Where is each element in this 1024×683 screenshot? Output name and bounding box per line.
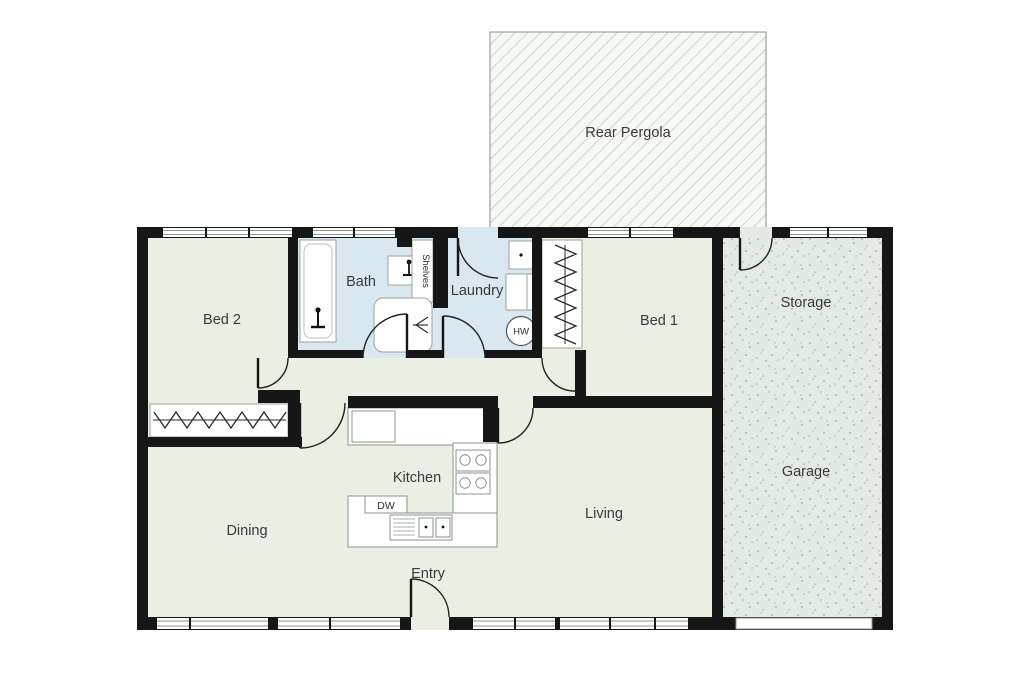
bath-window — [313, 228, 395, 237]
shelves-cupboard: Shelves — [412, 240, 433, 302]
bed2-window — [163, 228, 292, 237]
bath-basin — [388, 256, 415, 285]
hot-water-label: HW — [513, 327, 529, 338]
garage-door — [736, 618, 872, 629]
shower — [374, 298, 432, 352]
laundry-external-door-opening — [458, 227, 498, 238]
kitchen-bench-top — [348, 408, 497, 445]
floor-plan-canvas: Rear Pergola Shelves — [0, 0, 1024, 683]
bed2-wardrobe — [150, 404, 288, 437]
bed1-window — [588, 228, 673, 237]
kitchen-sink — [390, 515, 452, 540]
dishwasher: DW — [365, 496, 407, 513]
living-label: Living — [585, 506, 623, 522]
bed1-label: Bed 1 — [640, 313, 678, 329]
kitchen-bench-east — [453, 443, 497, 513]
entry-label: Entry — [411, 566, 446, 582]
dining-window-1 — [157, 618, 268, 629]
dining-window-2 — [278, 618, 400, 629]
rear-pergola-label: Rear Pergola — [585, 125, 671, 141]
bathtub — [300, 240, 336, 342]
storage-window — [790, 228, 867, 237]
kitchen-label: Kitchen — [393, 470, 441, 486]
garage-label: Garage — [782, 464, 830, 480]
hot-water-unit: HW — [507, 317, 536, 346]
floor-plan-page: Rear Pergola Shelves — [0, 0, 1024, 683]
bed2-label: Bed 2 — [203, 312, 241, 328]
dishwasher-label: DW — [377, 500, 395, 512]
washing-machine — [506, 274, 534, 310]
storage-label: Storage — [781, 295, 832, 311]
laundry-tub — [509, 241, 534, 269]
living-window-2 — [560, 618, 688, 629]
laundry-label: Laundry — [451, 283, 504, 299]
rear-pergola-area: Rear Pergola — [490, 32, 766, 228]
dining-label: Dining — [226, 523, 267, 539]
living-window-1 — [473, 618, 555, 629]
fridge — [352, 411, 395, 442]
entry-door-opening — [411, 617, 449, 630]
bath-label: Bath — [346, 274, 376, 290]
shelves-label: Shelves — [420, 254, 431, 288]
bed1-wardrobe — [542, 240, 582, 348]
storage-door-opening — [740, 227, 772, 238]
